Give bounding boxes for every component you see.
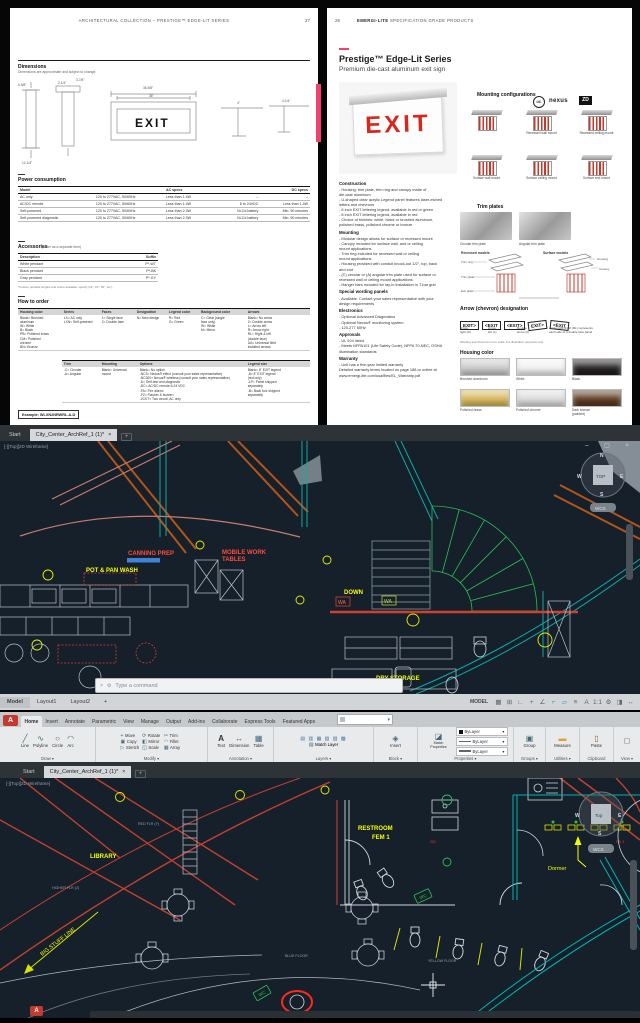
isodraft-icon[interactable]: ⌐ [548, 699, 559, 706]
tool-label: Trim [170, 733, 178, 738]
measure-icon: ▬ [559, 735, 567, 744]
library-floor-plan[interactable]: WC WC LIBRARY RESTROOM FEM 1 RED FLR (Y)… [0, 778, 640, 1018]
product-subtitle: Premium die-cast aluminum exit sign [339, 66, 445, 73]
product-title: Prestige™ Edge-Lit Series [339, 54, 452, 64]
section-title: Construction [339, 181, 457, 187]
ribbon-tab-manage[interactable]: Manage [137, 716, 162, 727]
trim-caption: Circular trim plate [460, 242, 486, 246]
polyline-icon: ∿ [37, 735, 44, 744]
match-properties-tool[interactable]: ◪Match Properties [426, 733, 452, 749]
array-icon: ▦ [164, 745, 169, 751]
swatch [572, 389, 622, 407]
mounting-caption: Recessed ceiling mount [569, 131, 624, 135]
tab-drawing-label: City_Center_ArchRef_1 (1)* [36, 432, 104, 438]
section-title: Special wording panels [339, 289, 457, 295]
section-title: Approvals [339, 332, 457, 338]
section-title: Electronics [339, 308, 457, 314]
workspace-dropdown[interactable]: ▾ [337, 714, 393, 725]
page-header: ARCHITECTURAL COLLECTION – PRESTIGE™ EDG… [10, 18, 298, 23]
page-header: EMERGI-LITE SPECIFICATION GRADE PRODUCTS [357, 18, 474, 23]
exploded-model-diagrams: Recessed models Surface models Trim ring… [459, 248, 619, 304]
chevron-down-icon: ▾ [387, 717, 390, 723]
accessories-table: DescriptionSuffix White pendantP*-WT Bla… [18, 253, 158, 282]
insert-block-icon: ◈ [392, 735, 398, 744]
swatch [572, 358, 622, 376]
tool-label: Polyline [33, 743, 48, 748]
viewcube-west[interactable]: W [577, 474, 582, 480]
color-swatch [459, 730, 463, 734]
polar-icon[interactable]: ∠ [537, 698, 548, 706]
snap-icon[interactable]: ⊞ [504, 698, 515, 706]
room-label-mobile2: TABLES [222, 557, 246, 563]
layer-swatch [340, 717, 345, 722]
linetype-dropdown[interactable]: ByLayer▾ [456, 737, 508, 746]
section-title: Warranty [339, 356, 457, 362]
exit-sign-icon [472, 110, 502, 130]
model-space-badge[interactable]: MODEL [470, 699, 488, 705]
mounting-caption: Recessed wall mount [514, 131, 569, 135]
swatch-label: Dark bronze (painted) [572, 408, 628, 416]
trim-plates-title: Trim plates [477, 204, 503, 210]
corridor-walls [340, 800, 522, 905]
command-customize-icon[interactable]: ⚙ [107, 683, 111, 689]
exit-sign-icon [527, 110, 557, 130]
light-symbols [32, 541, 552, 650]
selected-text-highlight[interactable] [127, 558, 160, 563]
bookshelf [183, 810, 197, 874]
color-swatch-item: White [516, 358, 572, 389]
room-label-potpan: POT & PAN WASH [86, 568, 138, 574]
svg-text:6-5/8": 6-5/8" [18, 83, 26, 87]
swatch [516, 389, 566, 407]
linetype-sample [459, 741, 471, 742]
tab-model[interactable]: Model [0, 697, 30, 708]
tool-label: Group [524, 743, 536, 748]
exit-sign-icon [472, 155, 502, 175]
tool-label: Match Layer [315, 742, 338, 747]
autocad-command-icon[interactable]: A [30, 1006, 43, 1016]
view-icon[interactable]: ◻ [624, 737, 631, 746]
file-tab-bar: Start City_Center_ArchRef_1 (1)* × + [0, 762, 640, 778]
models-label: Recessed models [461, 251, 490, 255]
ribbon: A Home Insert Annotate Parametric View M… [0, 712, 640, 762]
swatch-label: Polished brass [460, 408, 516, 412]
library-tables [136, 889, 384, 969]
table-tool[interactable]: ▦Table [253, 735, 263, 749]
dormer-callout: Dormer [548, 836, 586, 872]
tab-drawing-label: City_Center_ArchRef_1 (1)* [50, 769, 118, 775]
tab-drawing[interactable]: City_Center_ArchRef_1 (1)* × [44, 766, 132, 778]
panel-groups: ▣Group Groups ▾ [514, 727, 546, 762]
chevron-down-icon: ▾ [502, 739, 504, 744]
tool-label: Fillet [170, 739, 179, 744]
ribbon-tab-home[interactable]: Home [21, 716, 42, 727]
callout-label: Trim plate [461, 275, 475, 279]
section-body: - Optional Advanced Diagnostics - Option… [339, 314, 457, 329]
stairs [432, 506, 537, 611]
color-swatch-item: Brushed aluminum [460, 358, 516, 389]
table-row: Gray pendantP*-GY [18, 275, 158, 282]
annotation-scale-icon[interactable]: 1:1 [592, 699, 603, 706]
dimension-drawings: EXIT 6-5/8" 2-1/4" 3-7/8" 36-5/8" 36" 4"… [16, 76, 312, 168]
tool-label: Text [217, 743, 225, 748]
line-icon: ╱ [23, 735, 28, 744]
wc-badge: WC [253, 985, 271, 1001]
swatch-label: White [516, 377, 572, 381]
drawing-canvas-library[interactable]: WC WC LIBRARY RESTROOM FEM 1 RED FLR (Y)… [0, 778, 640, 1018]
table-row: AC only120 to 277VAC, 50/60HzLess than 1… [18, 194, 310, 201]
measure-tool[interactable]: ▬Measure [554, 735, 571, 749]
section-dash [18, 174, 25, 175]
swatch [516, 358, 566, 376]
section-title: Mounting [339, 230, 457, 236]
tool-label: Table [253, 743, 263, 748]
accessories-footnote: *Custom pendant lengths and colors avail… [18, 285, 112, 289]
table-row: Self-powered diagnostic120 to 277VAC, 50… [18, 215, 310, 222]
panel-utilities: ▬Measure Utilities ▾ [546, 727, 580, 762]
stair-flight [372, 541, 430, 609]
insert-block-tool[interactable]: ◈Insert [390, 735, 401, 749]
exit-sign-sample: EXIT> [528, 320, 548, 331]
tool-label: Array [170, 745, 180, 750]
brand-name: EMERGI-LITE [357, 18, 388, 23]
svg-text:2-1/4": 2-1/4" [58, 81, 66, 85]
match-layer-icon: ▤ [309, 742, 314, 748]
chevron-down-icon: ▾ [502, 729, 504, 734]
scale-tool[interactable]: ◱Scale [142, 745, 161, 751]
ribbon-tab-output[interactable]: Output [162, 716, 184, 727]
trim-caption: Angular trim plate [519, 242, 545, 246]
room-label-restroom2: FEM 1 [372, 835, 390, 841]
command-strip[interactable] [90, 1011, 640, 1018]
page-number: 27 [305, 18, 310, 23]
table-icon: ▦ [255, 735, 263, 744]
tool-label: Rotate [148, 733, 160, 738]
mounting-option: Recessed ceiling mount [569, 108, 624, 153]
text-tool[interactable]: AText [217, 735, 225, 749]
room-label-restroom: RESTROOM [358, 826, 393, 832]
section-body: - Available. Contact your sales represen… [339, 296, 457, 306]
ribbon-tab-insert[interactable]: Insert [42, 716, 62, 727]
catalog-spread: ARCHITECTURAL COLLECTION – PRESTIGE™ EDG… [0, 0, 640, 425]
tool-label: Insert [390, 743, 401, 748]
arrow-designation-title: Arrow (chevron) designation [460, 306, 528, 312]
line-tool[interactable]: ╱Line [21, 735, 29, 749]
zd-logo: ZD [579, 96, 592, 105]
lineweight-sample [459, 750, 471, 752]
tab-layout2[interactable]: Layout2 [63, 697, 97, 708]
grid-icon[interactable]: ▦ [493, 698, 504, 706]
dropdown-value: ByLayer [473, 739, 488, 744]
workspace-gear-icon[interactable]: ⚙ [603, 698, 614, 706]
swatch [460, 358, 510, 376]
scrollbar[interactable] [630, 860, 637, 950]
command-line[interactable]: × ⚙ Type a command [95, 678, 403, 693]
header-rest: SPECIFICATION GRADE PRODUCTS [388, 18, 473, 23]
power-title: Power consumption [18, 177, 66, 183]
table-row: Black pendantP*-BK [18, 268, 158, 275]
tool-label: Circle [52, 743, 63, 748]
tool-label: Measure [554, 743, 571, 748]
section-body: - Housing, trim plate, trim ring and can… [339, 187, 457, 228]
tool-label: Stretch [126, 745, 139, 750]
angular-trim-photo [519, 212, 571, 240]
big-stuff-label: BIG STUFF LINE [40, 926, 77, 957]
order-table-row2: TrimMountingOptionsLegend size -C= Circu… [18, 360, 310, 403]
paste-icon: ▯ [594, 735, 598, 744]
clean-screen-icon[interactable]: ↔ [625, 699, 636, 706]
room-label-canning: CANNING PREP [128, 551, 174, 557]
ribbon-tab-annotate[interactable]: Annotate [61, 716, 88, 727]
exit-sign-label: EXIT [354, 109, 443, 140]
svg-text:12-1/4": 12-1/4" [22, 161, 32, 165]
view-cube[interactable]: TOP N W E S WCS [577, 453, 625, 512]
note-gd: GD [430, 839, 436, 844]
keynote-badges: WA WA [336, 596, 396, 606]
swatch-label: Polished chrome [516, 408, 572, 412]
note-blue-floor: BLUE FLOOR [285, 954, 308, 958]
mounting-option [459, 108, 514, 153]
tool-label: Arc [67, 743, 73, 748]
status-bar: Model Layout1 Layout2 + MODEL ▦ ⊞ ∟ + ∠ … [0, 694, 640, 710]
exit-sign-icon [527, 155, 557, 175]
arrow-caption: Arrow right & left (RL) represents each … [549, 326, 593, 334]
exit-sign-icon [582, 110, 612, 130]
text-icon: A [218, 735, 224, 744]
section-dash [18, 241, 25, 242]
svg-text:3-7/8": 3-7/8" [76, 78, 84, 82]
drawing-canvas-kitchen[interactable]: WA WA CANNING PREP POT & PAN WASH MOBILE… [0, 441, 640, 694]
close-icon[interactable]: × [122, 769, 125, 775]
catalog-page-left: ARCHITECTURAL COLLECTION – PRESTIGE™ EDG… [10, 8, 318, 425]
new-layout-button[interactable]: + [97, 697, 114, 708]
arrow-caption: Arrow left (L) [488, 326, 497, 334]
match-layer-tool[interactable]: ▤Match Layer [309, 742, 338, 748]
new-tab-button[interactable]: + [135, 770, 146, 778]
color-swatch-item: Polished brass [460, 389, 516, 420]
ribbon-tab-express-tools[interactable]: Express Tools [241, 716, 279, 727]
table-row: Self-powered120 to 277VAC, 50/60HzLess t… [18, 208, 310, 215]
ribbon-tab-collaborate[interactable]: Collaborate [208, 716, 241, 727]
circular-trim-photo [460, 212, 512, 240]
note-yellow-floor: YELLOW FLOOR [428, 959, 457, 963]
dropdown-value: ByLayer [473, 749, 488, 754]
panel-annotation: AText ↔Dimension ▦Table Annotation ▾ [208, 727, 274, 762]
table-row: White pendantP*-WT [18, 261, 158, 268]
tool-label: Move [125, 733, 135, 738]
section-dash [18, 296, 25, 297]
callout-label: Canopy [599, 267, 610, 271]
wcs-label: WCS [593, 847, 604, 852]
svg-text:4-1/4": 4-1/4" [282, 99, 290, 103]
close-icon[interactable]: × [108, 432, 111, 438]
divider [18, 60, 310, 61]
accessories-note: (order as a separate item) [42, 245, 81, 249]
dimension-icon: ↔ [235, 735, 243, 744]
wc-badge: WC [414, 889, 432, 904]
tab-start[interactable]: Start [0, 429, 30, 441]
door-swings [517, 830, 622, 905]
ribbon-tab-addins[interactable]: Add-ins [184, 716, 208, 727]
section-body: - Modular design allows for surface or r… [339, 236, 457, 287]
mounting-option: Recessed wall mount [514, 108, 569, 153]
section-body: - Unit has a five-year limited warranty … [339, 362, 457, 377]
chevron-down-icon: ▾ [502, 749, 504, 754]
circle-tool[interactable]: ○Circle [52, 735, 63, 749]
viewcube-top-face[interactable]: Top [595, 813, 603, 818]
ribbon-tab-bar: A Home Insert Annotate Parametric View M… [0, 712, 640, 727]
exit-sign-icon [582, 155, 612, 175]
array-tool[interactable]: ▦Array [164, 745, 183, 751]
svg-text:4": 4" [237, 101, 240, 105]
light-symbols [116, 786, 330, 802]
file-tab-bar: Start City_Center_ArchRef_1 (1)* × + [0, 425, 640, 441]
viewport-controls[interactable]: [-][Top][2D Wireframe] [4, 444, 48, 449]
order-example: Example: WLXN2NRWRL-A-D [18, 410, 79, 419]
mounting-option: Surface end mount [569, 153, 624, 198]
dimension-tool[interactable]: ↔Dimension [229, 735, 249, 749]
arrow-caption: Arrow right (R) [460, 326, 471, 334]
note-red-flr: RED FLR (Y) [138, 822, 159, 826]
stretch-tool[interactable]: ▷Stretch [121, 745, 140, 751]
kitchen-floor-plan[interactable]: WA WA CANNING PREP POT & PAN WASH MOBILE… [0, 441, 640, 694]
swatch [460, 389, 510, 407]
product-photo: EXIT [339, 82, 457, 174]
dynamic-input-icon[interactable]: + [526, 699, 537, 706]
lineweight-dropdown[interactable]: ByLayer▾ [456, 747, 508, 756]
panel-modify: +Move ⟳Rotate ✂Trim ▣Copy ◧Mirror ◠Fille… [96, 727, 208, 762]
dropdown-value: ByLayer [465, 729, 480, 734]
viewcube-north[interactable]: N [600, 453, 604, 459]
nexus-logo: nexus [549, 98, 568, 104]
panel-view: ◻ View ▾ [614, 727, 640, 762]
dormer-label: Dormer [548, 866, 567, 872]
tool-label: Copy [127, 739, 137, 744]
roof-overlay [0, 778, 640, 970]
table-row: AC/DC remote120 to 277VAC, 50/60HzLess t… [18, 201, 310, 208]
mounting-caption: Surface wall mount [459, 176, 514, 180]
viewcube-west[interactable]: W [575, 813, 580, 819]
housing-color-grid: Brushed aluminum White Black Polished br… [460, 358, 628, 420]
annotation-icon[interactable]: A [581, 699, 592, 706]
section-body: - UL 924 listed - Meets NFPA101 (Life Sa… [339, 338, 457, 353]
swatch-label: Brushed aluminum [460, 377, 516, 381]
mounting-option: Surface ceiling mount [514, 153, 569, 198]
viewcube-top-face[interactable]: TOP [596, 474, 605, 479]
command-close-icon[interactable]: × [100, 683, 103, 689]
scrollbar[interactable] [626, 524, 633, 580]
ribbon-tab-parametric[interactable]: Parametric [88, 716, 119, 727]
tool-label: Scale [148, 745, 158, 750]
autocad-app-button[interactable]: A [3, 715, 18, 726]
panel-block: ◈Insert Block ▾ [374, 727, 418, 762]
big-stuff-callout: BIG STUFF LINE [24, 912, 98, 974]
housing-color-title: Housing color [460, 350, 494, 356]
tool-label: Mirror [148, 739, 159, 744]
order-title: How to order [18, 299, 49, 305]
room-label-mobile1: MOBILE WORK [222, 550, 267, 556]
panel-layers: ▤ ▥ ▦ ▧ ▨ ▩ ▤Match Layer Layers ▾ [274, 727, 374, 762]
ribbon-tab-featured-apps[interactable]: Featured Apps [279, 716, 319, 727]
ribbon-tab-view[interactable]: View [120, 716, 138, 727]
isolate-objects-icon[interactable]: ◨ [614, 698, 625, 706]
catalog-page-right: 26 EMERGI-LITE SPECIFICATION GRADE PRODU… [327, 8, 632, 425]
arrow-note: Wording and chevrons not to scale. For i… [460, 340, 544, 344]
arc-icon: ◠ [67, 735, 74, 744]
command-input[interactable]: Type a command [115, 683, 157, 689]
red-highlight-circle [282, 991, 312, 1013]
note-fs1: FS-1 [616, 839, 625, 844]
tool-label: Paste [591, 743, 602, 748]
group-icon: ▣ [526, 735, 534, 744]
tool-label: Dimension [229, 743, 249, 748]
polyline-tool[interactable]: ∿Polyline [33, 735, 48, 749]
tab-drawing[interactable]: City_Center_ArchRef_1 (1)* × [30, 429, 118, 441]
circle-icon: ○ [55, 735, 60, 744]
room-label-library: LIBRARY [90, 854, 116, 860]
label-down: DOWN [344, 590, 363, 596]
callout-label: Housing [597, 257, 608, 261]
crosshair-cursor [421, 973, 445, 997]
power-table: Model AC specs DC specs AC only120 to 27… [18, 186, 310, 222]
mounting-caption: Surface ceiling mount [514, 176, 569, 180]
paste-tool[interactable]: ▯Paste [591, 735, 602, 749]
svg-text:36": 36" [149, 94, 154, 98]
window-controls[interactable]: – ▢ × [585, 442, 636, 449]
mounting-caption: Surface end mount [569, 176, 624, 180]
arc-tool[interactable]: ◠Arc [67, 735, 74, 749]
color-swatch-item: Polished chrome [516, 389, 572, 420]
stretch-icon: ▷ [121, 745, 125, 751]
ribbon-panels: ╱Line ∿Polyline ○Circle ◠Arc Draw ▾ +Mov… [0, 727, 640, 762]
viewport-controls[interactable]: [-][Top][2D Wireframe] [6, 781, 50, 786]
tool-label: Line [21, 743, 29, 748]
group-tool[interactable]: ▣Group [524, 735, 536, 749]
wcs-label: WCS [595, 506, 606, 511]
floor-arcs [0, 955, 420, 1018]
exit-sign-photo: EXIT [352, 96, 444, 155]
callout-label: Trim ring [461, 260, 473, 264]
exit-drawing-label: EXIT [135, 116, 170, 130]
color-dropdown[interactable]: ByLayer▾ [456, 727, 508, 736]
scale-icon: ◱ [142, 745, 147, 751]
svg-text:36-5/8": 36-5/8" [143, 86, 153, 90]
ortho-icon[interactable]: ∟ [515, 699, 526, 706]
order-table-row1: Housing colorSeriesFacesDesignationLegen… [18, 308, 310, 351]
svg-text:WA: WA [338, 600, 347, 606]
osnap-icon[interactable]: ▱ [559, 698, 570, 706]
mounting-option: Surface wall mount [459, 153, 514, 198]
title-dash [339, 48, 349, 50]
highlighted-equipment [58, 573, 156, 663]
tab-layout1[interactable]: Layout1 [30, 697, 64, 708]
note-higher-flr: HIGHER FLR (2) [52, 886, 79, 890]
lineweight-icon[interactable]: ≡ [570, 699, 581, 706]
sign-canopy [349, 88, 447, 106]
dimensions-note: Dimensions are approximate and subject t… [18, 70, 96, 74]
color-swatch-item: Black [572, 358, 628, 389]
mounting-config-title: Mounting configurations [477, 92, 536, 98]
kitchen-equipment [0, 560, 570, 689]
new-tab-button[interactable]: + [121, 433, 132, 441]
callout-label: Exit plate [461, 289, 474, 293]
panel-draw: ╱Line ∿Polyline ○Circle ◠Arc Draw ▾ [0, 727, 96, 762]
color-swatch-item: Dark bronze (painted) [572, 389, 628, 420]
page-number: 26 [335, 18, 340, 23]
tab-start[interactable]: Start [14, 766, 44, 778]
mounting-config-grid: Recessed wall mount Recessed ceiling mou… [459, 108, 624, 198]
tool-label: Match Properties [426, 742, 452, 750]
